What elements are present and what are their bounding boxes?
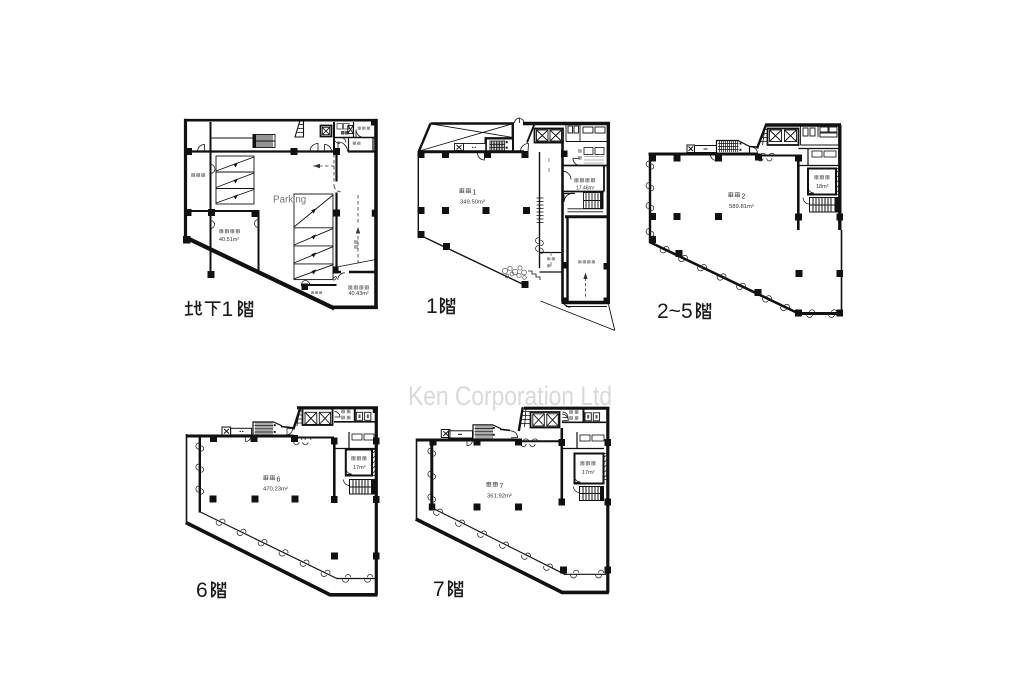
svg-text:1: 1 (473, 190, 477, 197)
svg-text:Ken Corporation Ltd: Ken Corporation Ltd (408, 381, 612, 411)
svg-text:1: 1 (426, 295, 438, 318)
svg-text:589.81m²: 589.81m² (729, 204, 754, 210)
svg-text:361.92m²: 361.92m² (487, 494, 512, 500)
svg-text:7: 7 (500, 483, 504, 490)
svg-text:17.46m²: 17.46m² (576, 186, 595, 192)
svg-text:2~5: 2~5 (657, 300, 693, 323)
svg-text:6: 6 (196, 579, 208, 602)
svg-text:7: 7 (433, 578, 445, 601)
svg-text:349.50m²: 349.50m² (460, 200, 485, 206)
svg-text:2: 2 (742, 194, 746, 201)
svg-text:40.51m²: 40.51m² (219, 237, 239, 243)
svg-text:17m²: 17m² (582, 470, 595, 476)
svg-text:18m²: 18m² (816, 184, 829, 190)
svg-text:1: 1 (222, 298, 234, 321)
svg-text:Parking: Parking (273, 195, 306, 206)
svg-text:6: 6 (277, 477, 281, 484)
svg-text:470.23m²: 470.23m² (263, 487, 288, 493)
svg-text:40.43m²: 40.43m² (349, 291, 369, 297)
svg-text:17m²: 17m² (353, 465, 366, 471)
